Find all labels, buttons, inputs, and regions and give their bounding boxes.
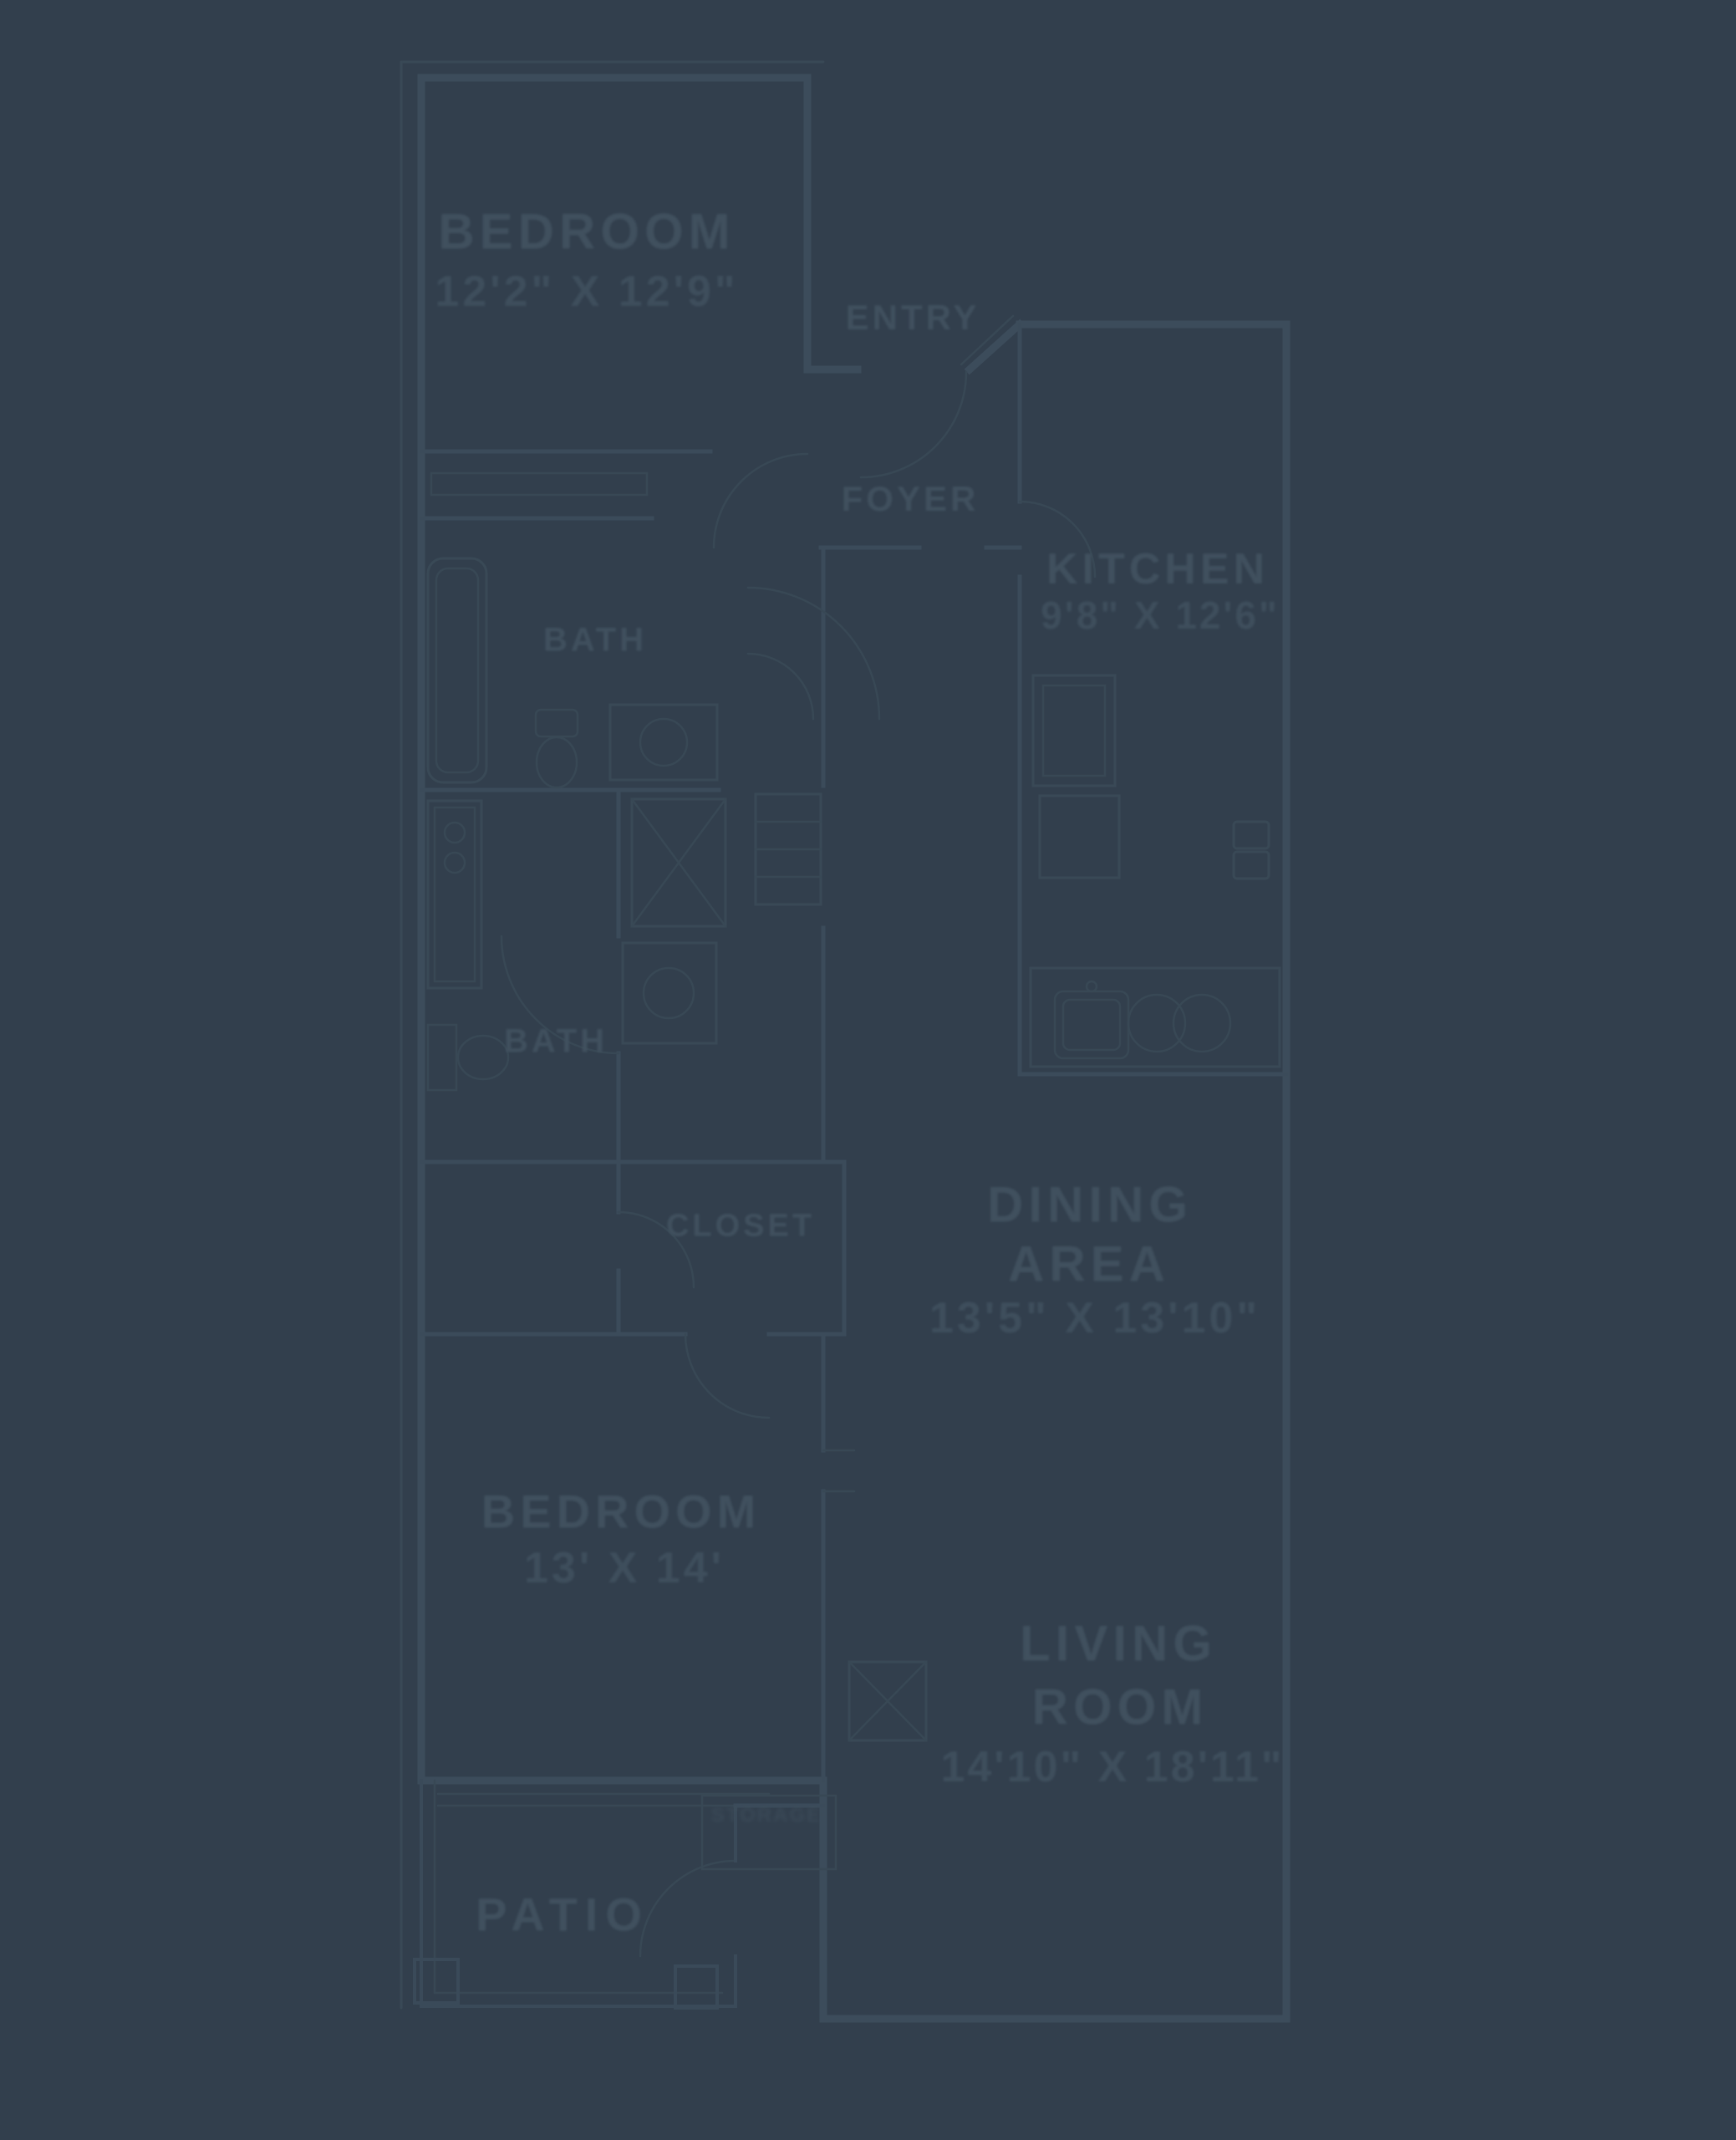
living-label-line2: ROOM bbox=[1032, 1679, 1209, 1736]
living-dims: 14'10" X 18'11" bbox=[940, 1742, 1284, 1792]
toilet-bowl bbox=[537, 737, 577, 787]
foyer-label: FOYER bbox=[842, 479, 980, 519]
burner bbox=[1128, 995, 1185, 1052]
dining-label-line1: DINING bbox=[987, 1176, 1193, 1234]
kitchen-fixtures bbox=[1031, 675, 1280, 1067]
pantry bbox=[1040, 796, 1119, 878]
faucet bbox=[1087, 981, 1097, 991]
wall-oven bbox=[1234, 822, 1269, 848]
bedroom2-label: BEDROOM bbox=[481, 1485, 761, 1539]
burner bbox=[1173, 995, 1230, 1052]
sink bbox=[644, 968, 694, 1018]
patio-post bbox=[675, 1966, 717, 2008]
dining-label-line2: AREA bbox=[1008, 1236, 1170, 1293]
bedroom2-door-arc bbox=[685, 1334, 769, 1418]
bedroom2-dims: 13' X 14' bbox=[524, 1543, 725, 1593]
bath1-fixtures bbox=[428, 558, 717, 787]
shower bbox=[428, 801, 481, 988]
storage-label: STORAGE bbox=[711, 1804, 822, 1827]
vanity bbox=[610, 705, 717, 780]
patio-label: PATIO bbox=[476, 1888, 649, 1942]
wall-oven bbox=[1234, 852, 1269, 879]
living-label-line1: LIVING bbox=[1020, 1615, 1217, 1673]
entry-label: ENTRY bbox=[846, 298, 980, 338]
exterior-face-lines bbox=[401, 62, 1013, 2008]
toilet-tank bbox=[428, 1025, 456, 1090]
bath2-label: BATH bbox=[504, 1023, 608, 1061]
bedroom1-label: BEDROOM bbox=[438, 203, 735, 261]
bedroom1-wardrobe bbox=[431, 473, 647, 495]
foyer-closet-arc bbox=[748, 588, 879, 719]
closet-label: CLOSET bbox=[666, 1209, 815, 1245]
bath1-label: BATH bbox=[543, 622, 647, 660]
floor-plan-page: BEDROOM 12'2" X 12'9" ENTRY FOYER KITCHE… bbox=[0, 0, 1736, 2140]
patio-door-arc bbox=[640, 1861, 736, 1956]
kitchen-label: KITCHEN bbox=[1046, 544, 1269, 594]
toilet-tank bbox=[536, 710, 578, 736]
refrigerator bbox=[1033, 675, 1115, 786]
kitchen-dims: 9'8" X 12'6" bbox=[1041, 593, 1280, 638]
entry-door-arc bbox=[861, 372, 966, 477]
hall-closets bbox=[632, 794, 821, 926]
dining-dims: 13'5" X 13'10" bbox=[929, 1293, 1260, 1343]
sink bbox=[640, 719, 687, 766]
bedroom1-dims: 12'2" X 12'9" bbox=[435, 267, 738, 317]
bedroom1-door-arc bbox=[714, 454, 807, 548]
vanity bbox=[623, 943, 716, 1043]
toilet-bowl bbox=[458, 1036, 508, 1079]
